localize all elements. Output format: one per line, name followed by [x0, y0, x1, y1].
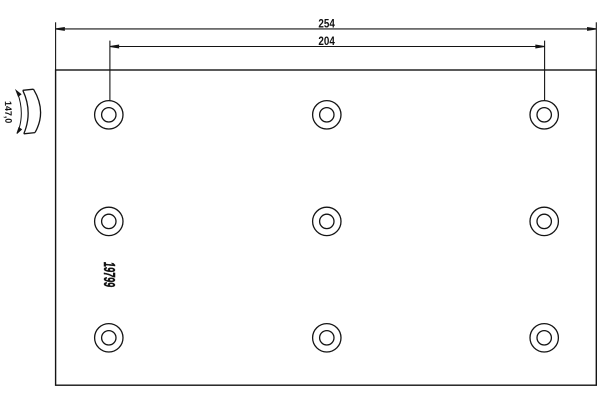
svg-text:19799: 19799	[100, 262, 117, 287]
svg-text:147,0: 147,0	[2, 101, 13, 124]
svg-text:204: 204	[318, 36, 335, 48]
svg-text:254: 254	[318, 19, 335, 31]
